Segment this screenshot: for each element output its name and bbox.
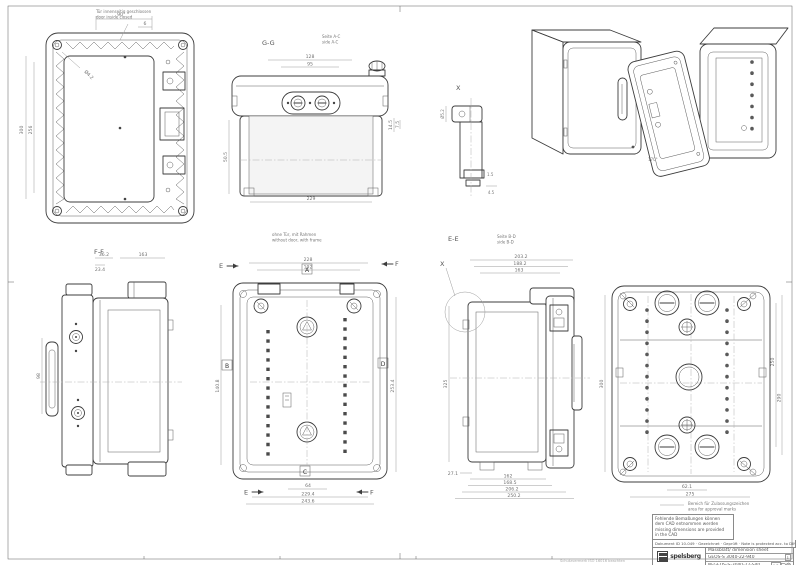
- dim-text: 7.5: [395, 121, 401, 128]
- view-detail-x: X Ø5.2 4.5 1.5: [440, 84, 497, 196]
- dim-text: 229: [307, 196, 316, 202]
- product-code: GEOS-S 3040-22-940: [708, 555, 783, 560]
- dim-text: 250: [770, 358, 776, 367]
- svg-text:D: D: [381, 361, 386, 368]
- dim-text: 188.2: [513, 261, 526, 267]
- zone-box-b: B: [222, 360, 232, 370]
- note-approval: Bereich für Zulassungszeichen area for a…: [660, 501, 750, 512]
- cad-note-line: in the CAD: [655, 532, 731, 537]
- view-rear: 300 250 290 62.1 275: [599, 286, 783, 498]
- section-arrow-e-top: E: [219, 262, 238, 270]
- dim-text: 325: [443, 380, 449, 389]
- detail-marker-x: X: [440, 260, 445, 268]
- label-side-ac: side A-C: [322, 40, 339, 45]
- note-frame-de: ohne Tür, mit Rahmen: [272, 232, 317, 237]
- note-door-de: Tür innenseitig geschlossen: [95, 9, 152, 14]
- dim-text: 140.8: [215, 379, 221, 392]
- svg-text:C: C: [303, 469, 307, 476]
- dim-text: 128: [306, 54, 315, 60]
- brand-logo: spelsberg: [653, 548, 706, 565]
- document-row: Dokument ID 10-049 · Gezeichnet · Geprüf…: [652, 540, 796, 548]
- drawing-canvas: 90 6 300 256 Ø4.2 Tür innenseitig geschl…: [0, 0, 800, 565]
- dim-text: 206.2: [505, 487, 518, 493]
- view-side-ff: F-F 36.2 23.4 163 98: [36, 248, 182, 476]
- dim-text: Ø5.2: [440, 109, 445, 119]
- dim-text: 168.5: [503, 480, 516, 486]
- section-arrow-f-bottom: F: [357, 489, 374, 497]
- svg-text:E: E: [244, 489, 248, 497]
- document-number-row: M-GEOS-S-3040-22-S40 1/1: [706, 562, 793, 565]
- section-arrow-e-bottom: E: [244, 489, 263, 497]
- dim-text: 256: [28, 126, 34, 135]
- svg-text:E: E: [219, 262, 223, 270]
- view-top-gg: G-G Seite A-C side A-C 128 95 14.5 7.5: [223, 34, 401, 202]
- dim-text: 275: [686, 492, 695, 498]
- label-seite-bd: Seite B-D: [497, 234, 516, 239]
- title-block: Fehlende Bemaßungen können dem CAD entno…: [652, 514, 794, 565]
- dim-text: 163: [515, 268, 524, 274]
- revision-cell: 1: [785, 554, 791, 561]
- svg-text:F: F: [395, 260, 399, 268]
- dim-text: 163: [139, 252, 148, 258]
- dim-text: 27.1: [448, 471, 458, 477]
- dim-text: 162: [504, 474, 513, 480]
- svg-text:B: B: [225, 363, 229, 370]
- dim-text: 62.1: [682, 484, 692, 490]
- hinge-knob: [369, 61, 385, 76]
- dim-text: 300: [599, 380, 605, 389]
- section-arrow-f-top: F: [382, 260, 399, 268]
- note-door-en: door inside closed: [96, 15, 133, 20]
- dim-text: 23.4: [95, 267, 105, 273]
- open-door: [626, 50, 711, 179]
- brand-logo-icon: [657, 551, 668, 562]
- product-row: GEOS-S 3040-22-940 1: [706, 554, 793, 562]
- dim-text: 203.2: [514, 254, 527, 260]
- note-approval-en: area for approval marks: [688, 507, 736, 512]
- dim-text: 6: [144, 21, 147, 27]
- dim-text: 228: [304, 257, 313, 263]
- dim-text: 192: [304, 265, 313, 271]
- dim-text: 300: [19, 126, 25, 135]
- view-iso-open: 170°: [626, 28, 788, 178]
- projection-symbol-icon: [781, 562, 791, 565]
- dim-text: 4.5: [488, 190, 495, 195]
- dim-text: 95: [307, 62, 313, 68]
- label-seite-ac: Seite A-C: [322, 34, 341, 39]
- protection-note: Schutzvermerk ISO 16016 beachten: [560, 559, 625, 563]
- section-label-ee: E-E: [448, 235, 459, 243]
- dim-text: 36.2: [99, 252, 109, 258]
- dim-text: 64: [305, 483, 311, 489]
- dim-text: 250.2: [507, 493, 520, 499]
- dim-text: 50.5: [223, 152, 229, 162]
- dim-text: 253.4: [390, 379, 396, 392]
- detail-x-label: X: [456, 84, 461, 92]
- drawing-sheet: 90 6 300 256 Ø4.2 Tür innenseitig geschl…: [0, 0, 800, 565]
- note-approval-de: Bereich für Zulassungszeichen: [688, 501, 750, 506]
- title-block-main: spelsberg Massblatt/ dimension sheet GEO…: [652, 548, 794, 565]
- door-angle-label: 170°: [648, 157, 658, 162]
- dim-text: 243.6: [301, 499, 314, 505]
- view-front-frame: ohne Tür, mit Rahmen without door, with …: [215, 232, 399, 505]
- dim-text: 1.5: [487, 172, 494, 177]
- brand-name: spelsberg: [670, 553, 700, 560]
- title-rows: Massblatt/ dimension sheet GEOS-S 3040-2…: [706, 548, 793, 565]
- section-label-gg: G-G: [262, 39, 275, 47]
- note-frame-en: without door, with frame: [272, 238, 322, 243]
- view-side-ee: E-E Seite B-D side B-D X 203.2 188.2 163…: [440, 234, 590, 499]
- dim-text: 98: [36, 373, 42, 379]
- view-back-inside: 90 6 300 256 Ø4.2: [19, 12, 194, 223]
- dim-text: 290: [777, 394, 783, 403]
- dim-text: 229.4: [301, 492, 314, 498]
- svg-text:F: F: [370, 489, 374, 497]
- dim-text: 14.5: [388, 120, 394, 130]
- label-side-bd: side B-D: [497, 240, 514, 245]
- drawing-title: Massblatt/ dimension sheet: [708, 548, 791, 553]
- cad-note: Fehlende Bemaßungen können dem CAD entno…: [652, 514, 734, 540]
- view-iso-closed: [532, 30, 641, 154]
